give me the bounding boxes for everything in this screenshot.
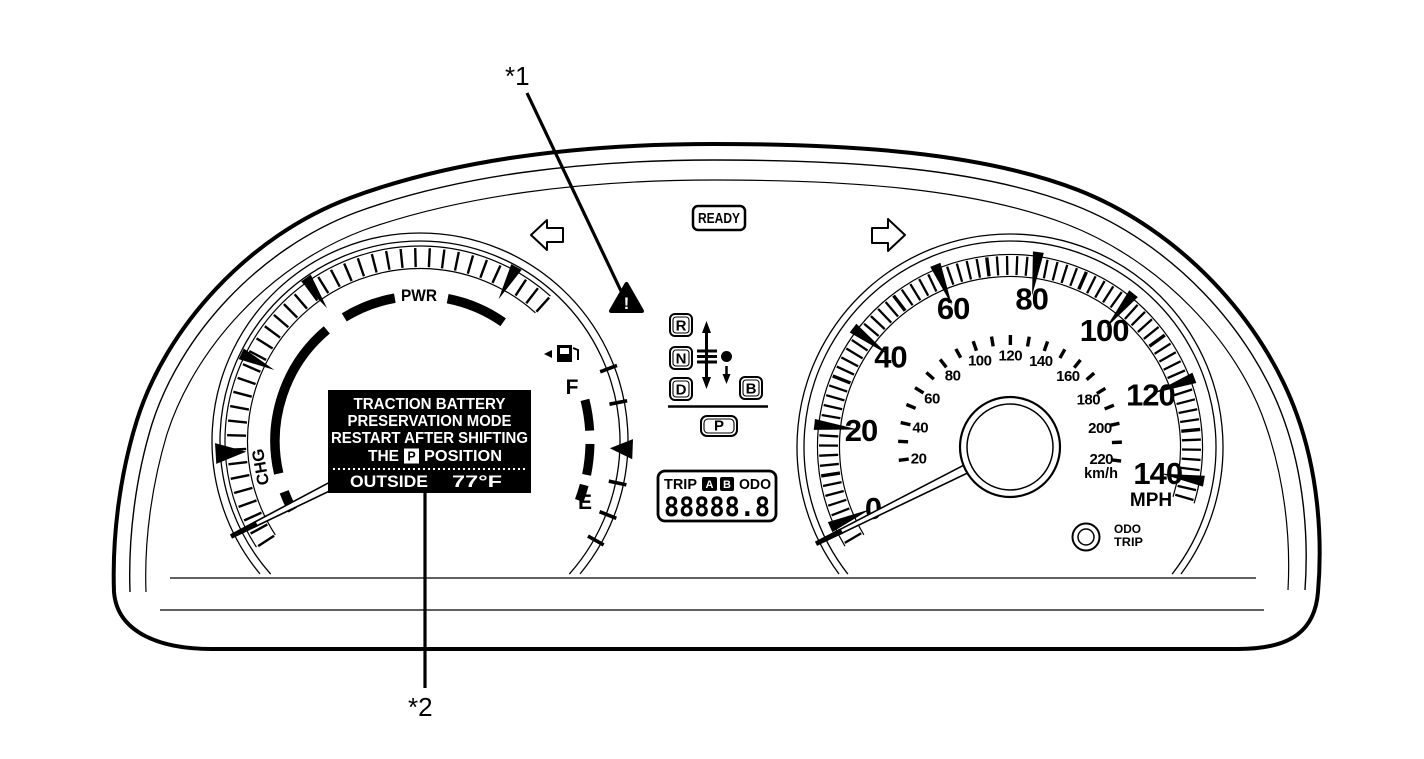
callout-1-label: *1 [505, 61, 530, 91]
display-outside-temperature: 77°F [452, 473, 502, 491]
pwr-label: PWR [401, 287, 437, 305]
trip-a-label: A [706, 479, 714, 491]
gear-box-r: R [670, 314, 692, 336]
fuel-empty-label: E [578, 491, 592, 514]
speedo-mph-number: 140 [1133, 456, 1182, 491]
display-message-line: TRACTION BATTERY [354, 396, 507, 413]
fuel-level-band [579, 400, 590, 501]
warning-exclamation-glyph: ! [624, 294, 630, 313]
cluster-drawing: 0204060801001201402040608010012014016018… [0, 0, 1424, 759]
shift-gate-diagram [697, 321, 732, 389]
speedo-kmh-number: 140 [1029, 353, 1053, 370]
speedo-mph-number: 20 [845, 413, 877, 448]
speedo-kmh-number: 200 [1088, 420, 1112, 437]
speedo-kmh-number: 20 [911, 450, 927, 467]
gear-box-b: B [740, 377, 762, 399]
left-turn-signal-icon [531, 220, 563, 250]
shift-position-indicator: R N D B [668, 314, 768, 436]
gear-box-d: D [670, 378, 692, 400]
ready-label: READY [698, 210, 740, 227]
gear-r-label: R [676, 318, 687, 335]
display-p-badge-label: P [407, 450, 415, 464]
fuel-full-label: F [566, 376, 579, 399]
gear-p-label: P [714, 418, 724, 435]
odo-trip-knob [1078, 529, 1094, 545]
speedo-kmh-number: 80 [945, 368, 961, 385]
speedo-mph-number: 120 [1126, 377, 1175, 412]
odometer-digits: 88888.8 [664, 492, 770, 523]
speedo-kmh-number: 40 [912, 419, 928, 436]
master-warning-icon: ! [611, 284, 642, 313]
speedometer-hub-inner [967, 404, 1053, 490]
right-turn-signal-icon [872, 219, 905, 251]
display-outside-label: OUTSIDE [350, 473, 428, 491]
trip-b-label: B [723, 479, 731, 491]
odo-label: ODO [739, 477, 771, 493]
kmh-unit-label: km/h [1084, 466, 1118, 482]
fuel-tick-marks [588, 365, 633, 545]
speedo-mph-number: 40 [874, 339, 906, 374]
fuel-gauge [579, 365, 633, 545]
display-message-line4-post: POSITION [424, 448, 502, 465]
speedo-mph-number: 80 [1015, 282, 1047, 317]
fuel-pump-icon [544, 345, 578, 362]
odo-trip-button[interactable] [1073, 524, 1100, 551]
gear-d-label: D [676, 382, 687, 399]
mph-unit-label: MPH [1130, 490, 1172, 511]
speedo-kmh-number: 100 [968, 353, 992, 370]
speedo-mph-number: 100 [1080, 313, 1129, 348]
speedo-mph-number: 60 [937, 291, 969, 326]
odo-trip-button-label-2: TRIP [1114, 535, 1143, 549]
odometer-display: TRIP A B ODO 88888.8 [658, 471, 776, 523]
speedometer: 0204060801001201402040608010012014016018… [797, 234, 1223, 574]
speedo-kmh-number: 60 [924, 391, 940, 408]
multi-information-display: TRACTION BATTERYPRESERVATION MODERESTART… [328, 390, 531, 493]
odo-trip-button-label-1: ODO [1114, 522, 1141, 536]
display-message-line: RESTART AFTER SHIFTING [331, 430, 528, 447]
callout-2-label: *2 [408, 692, 433, 722]
callout-1: *1 [505, 61, 621, 291]
trip-label: TRIP [664, 477, 697, 493]
display-message-line4-pre: THE [368, 448, 399, 465]
speedo-kmh-number: 120 [999, 348, 1023, 365]
callout-2: *2 [408, 493, 433, 722]
speedo-kmh-number: 180 [1077, 391, 1101, 408]
gear-box-p: P [701, 416, 737, 436]
speedo-kmh-number: 160 [1056, 368, 1080, 385]
display-message-line: PRESERVATION MODE [348, 413, 512, 430]
gear-box-n: N [670, 347, 692, 369]
instrument-cluster-diagram: 0204060801001201402040608010012014016018… [0, 0, 1424, 759]
ready-indicator: READY [693, 206, 745, 230]
gear-b-label: B [746, 381, 757, 398]
gear-n-label: N [676, 351, 687, 368]
